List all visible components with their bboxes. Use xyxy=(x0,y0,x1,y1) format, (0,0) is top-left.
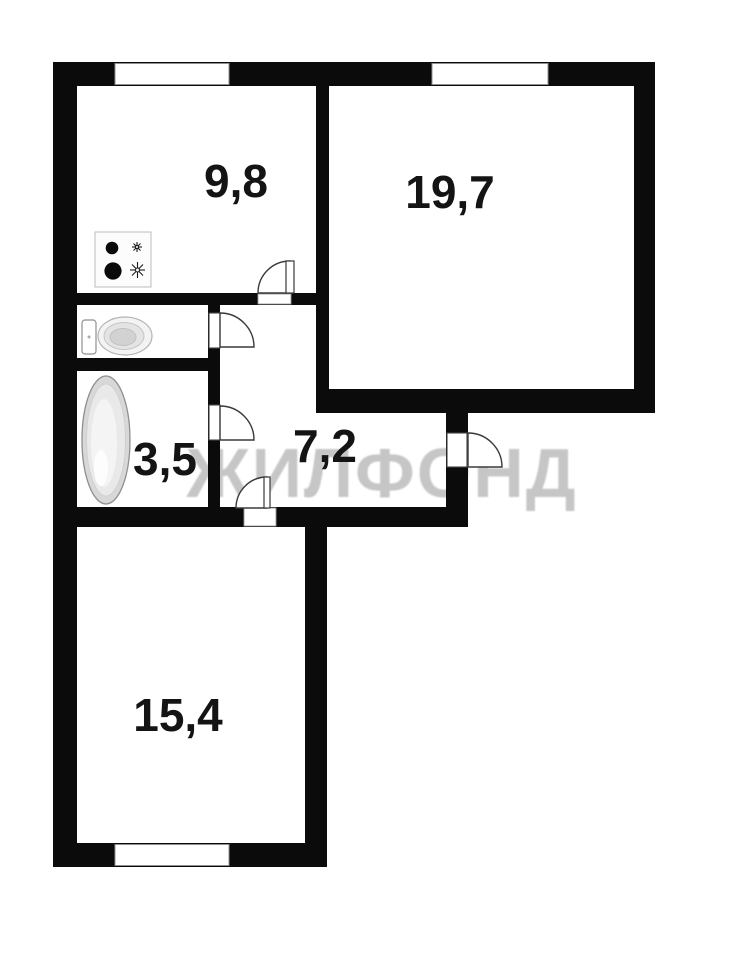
wall xyxy=(53,62,77,867)
room-area-label: 19,7 xyxy=(405,166,495,218)
wall xyxy=(77,358,208,371)
wall xyxy=(316,389,655,413)
window xyxy=(432,64,548,85)
door-threshold xyxy=(209,313,220,348)
wall xyxy=(305,527,327,867)
wall xyxy=(316,86,329,389)
wall xyxy=(634,62,655,413)
floor-plan-page: ЖИЛФОНД xyxy=(0,0,754,960)
door-threshold xyxy=(244,508,276,526)
door-threshold xyxy=(447,433,467,467)
bathtub-icon xyxy=(82,376,130,504)
window xyxy=(115,845,229,866)
door-leaf xyxy=(286,261,294,293)
door-leaf xyxy=(264,477,270,508)
door-threshold xyxy=(258,294,291,304)
room-area-label: 7,2 xyxy=(293,420,357,472)
door-threshold xyxy=(209,405,220,440)
toilet-icon xyxy=(82,317,152,355)
room-area-label: 9,8 xyxy=(204,155,268,207)
stove-icon xyxy=(95,232,151,287)
room-area-label: 3,5 xyxy=(133,433,197,485)
floor-plan: ЖИЛФОНД xyxy=(0,0,754,960)
room-area-label: 15,4 xyxy=(133,689,223,741)
window xyxy=(115,64,229,85)
